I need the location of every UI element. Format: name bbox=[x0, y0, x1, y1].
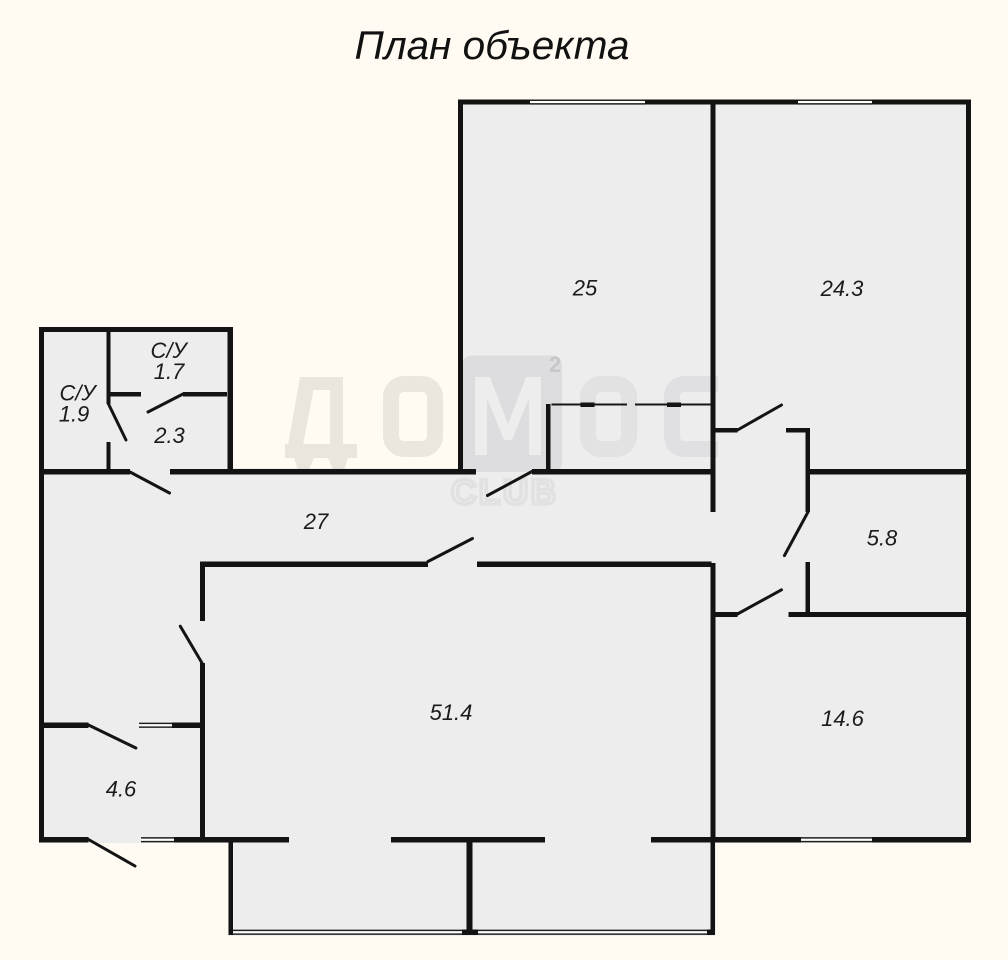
svg-text:25: 25 bbox=[572, 276, 598, 301]
svg-text:27: 27 bbox=[303, 509, 329, 534]
svg-text:14.6: 14.6 bbox=[821, 706, 865, 731]
svg-text:2.3: 2.3 bbox=[153, 423, 185, 448]
svg-text:2: 2 bbox=[549, 352, 561, 377]
svg-text:CLUB: CLUB bbox=[451, 473, 564, 512]
svg-text:4.6: 4.6 bbox=[106, 777, 137, 802]
svg-text:1.7: 1.7 bbox=[154, 359, 185, 384]
svg-text:План объекта: План объекта bbox=[355, 24, 630, 68]
svg-text:5.8: 5.8 bbox=[867, 526, 898, 551]
svg-text:1.9: 1.9 bbox=[59, 402, 90, 427]
svg-text:51.4: 51.4 bbox=[430, 700, 473, 725]
svg-text:24.3: 24.3 bbox=[820, 276, 865, 301]
